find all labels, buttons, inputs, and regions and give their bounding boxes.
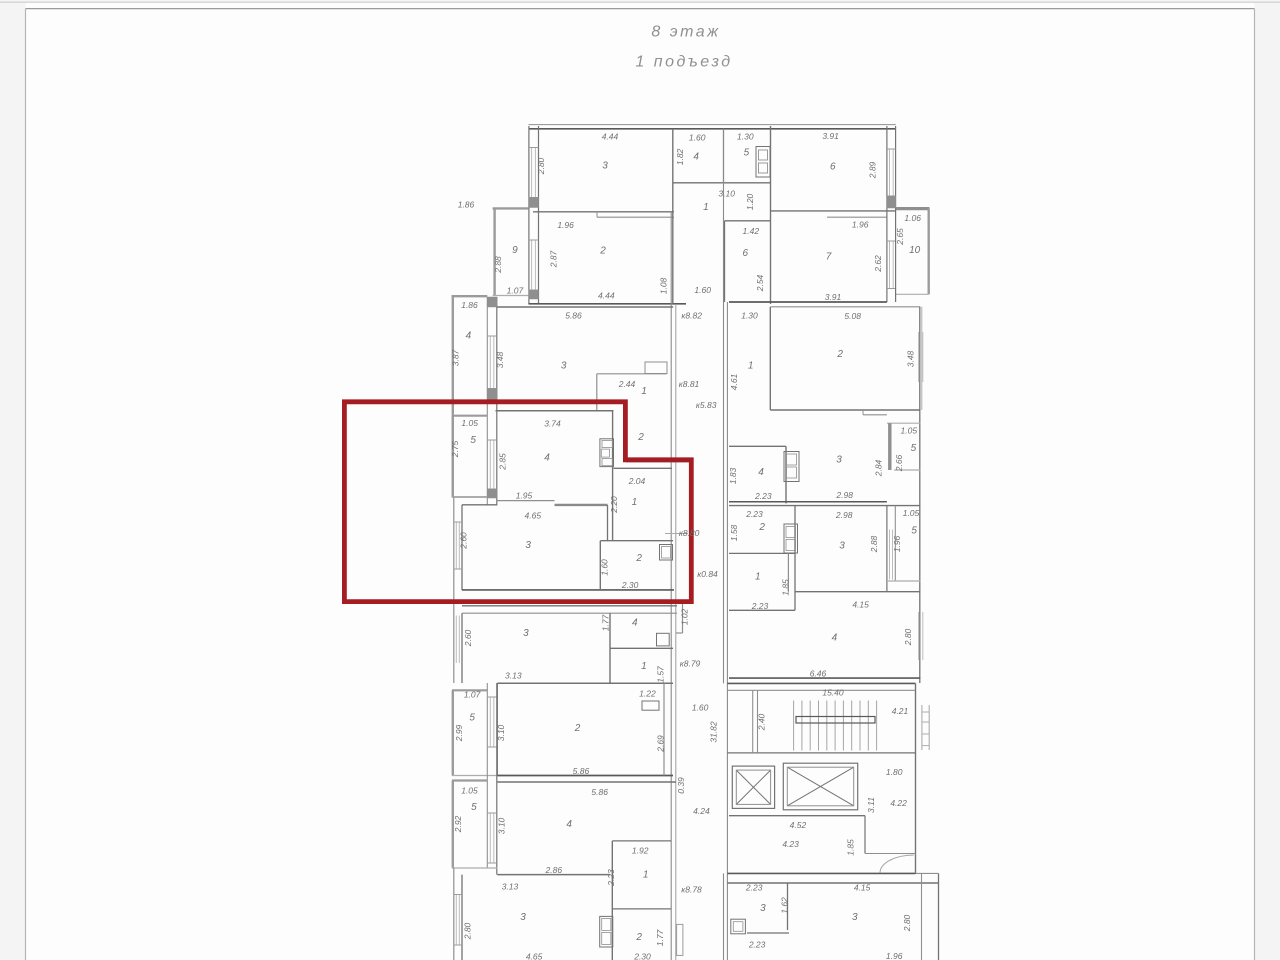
svg-text:1.30: 1.30	[741, 311, 758, 321]
svg-text:4: 4	[693, 152, 699, 163]
svg-text:4: 4	[466, 331, 472, 342]
svg-text:4.65: 4.65	[525, 511, 542, 521]
svg-text:1.07: 1.07	[507, 286, 524, 296]
svg-text:к0.84: к0.84	[697, 569, 718, 579]
svg-text:2.98: 2.98	[835, 490, 853, 500]
svg-text:6.46: 6.46	[810, 669, 827, 679]
svg-text:4.21: 4.21	[892, 706, 909, 716]
svg-text:2.30: 2.30	[621, 580, 639, 590]
svg-text:1.77: 1.77	[655, 929, 665, 946]
svg-text:1.86: 1.86	[461, 300, 478, 310]
svg-text:2.60: 2.60	[458, 532, 468, 550]
svg-text:1.60: 1.60	[692, 703, 709, 713]
svg-text:1.96: 1.96	[557, 220, 574, 230]
svg-text:4: 4	[832, 633, 838, 644]
svg-text:2.23: 2.23	[751, 601, 769, 611]
svg-text:2.80: 2.80	[903, 628, 913, 646]
svg-text:2.23: 2.23	[748, 940, 766, 950]
svg-text:3: 3	[839, 541, 845, 552]
svg-text:31.82: 31.82	[709, 721, 719, 743]
svg-text:2.23: 2.23	[745, 883, 763, 893]
svg-text:1.95: 1.95	[516, 491, 533, 501]
svg-text:2.66: 2.66	[894, 454, 904, 472]
svg-text:3.11: 3.11	[866, 797, 876, 813]
svg-text:4.15: 4.15	[854, 883, 871, 893]
svg-text:2.65: 2.65	[895, 228, 905, 246]
svg-text:1.77: 1.77	[600, 614, 610, 631]
svg-text:10: 10	[909, 245, 921, 256]
svg-text:1.86: 1.86	[458, 200, 475, 210]
svg-text:2.85: 2.85	[498, 453, 508, 471]
svg-text:1: 1	[641, 386, 647, 397]
svg-text:1.08: 1.08	[659, 277, 669, 294]
svg-text:2.84: 2.84	[873, 459, 883, 477]
svg-text:2.99: 2.99	[454, 724, 464, 742]
svg-text:1.42: 1.42	[743, 226, 760, 236]
svg-text:1: 1	[703, 202, 709, 213]
svg-text:2: 2	[758, 522, 765, 533]
svg-text:3: 3	[836, 455, 842, 466]
svg-text:к8.81: к8.81	[679, 379, 700, 389]
svg-text:2.88: 2.88	[493, 256, 503, 274]
svg-text:2.44: 2.44	[618, 379, 636, 389]
svg-text:1.22: 1.22	[639, 689, 656, 699]
svg-text:3: 3	[561, 361, 567, 372]
svg-text:5: 5	[471, 802, 477, 813]
svg-text:2.69: 2.69	[655, 735, 665, 753]
svg-text:1.07: 1.07	[464, 690, 481, 700]
svg-text:3.87: 3.87	[451, 349, 461, 366]
svg-text:2.30: 2.30	[633, 952, 651, 960]
svg-text:7: 7	[826, 252, 832, 263]
svg-text:4.22: 4.22	[890, 798, 907, 808]
svg-text:3.10: 3.10	[496, 724, 506, 741]
svg-text:1 подъезд: 1 подъезд	[635, 54, 732, 71]
svg-text:2: 2	[599, 246, 606, 257]
svg-text:3: 3	[852, 912, 858, 923]
svg-text:1.02: 1.02	[680, 608, 690, 625]
svg-text:1.96: 1.96	[852, 220, 869, 230]
svg-text:4: 4	[632, 618, 638, 629]
svg-text:1.57: 1.57	[655, 666, 665, 683]
svg-text:2.04: 2.04	[628, 476, 646, 486]
svg-text:2.86: 2.86	[545, 865, 563, 875]
svg-text:2.23: 2.23	[754, 491, 772, 501]
svg-text:3.10: 3.10	[497, 817, 507, 834]
svg-text:5.86: 5.86	[565, 311, 582, 321]
svg-text:1.30: 1.30	[737, 132, 754, 142]
svg-text:1.62: 1.62	[780, 897, 790, 914]
svg-text:3: 3	[602, 161, 608, 172]
svg-text:1.05: 1.05	[461, 786, 478, 796]
svg-text:4: 4	[758, 467, 764, 478]
svg-text:3.91: 3.91	[822, 131, 839, 141]
svg-text:3.10: 3.10	[718, 189, 735, 199]
svg-text:2.23: 2.23	[745, 509, 763, 519]
svg-text:1.60: 1.60	[694, 285, 711, 295]
svg-text:3: 3	[525, 540, 531, 551]
svg-text:1: 1	[632, 497, 638, 508]
svg-text:2.54: 2.54	[755, 274, 765, 292]
svg-text:4.44: 4.44	[598, 291, 615, 301]
svg-text:к8.82: к8.82	[681, 311, 702, 321]
svg-text:2.23: 2.23	[606, 869, 616, 887]
svg-text:2.80: 2.80	[463, 922, 473, 940]
svg-text:1.05: 1.05	[461, 418, 478, 428]
svg-text:5: 5	[911, 443, 917, 454]
svg-text:4.15: 4.15	[852, 600, 869, 610]
svg-text:3.13: 3.13	[505, 671, 522, 681]
svg-text:3.74: 3.74	[544, 419, 561, 429]
svg-text:1: 1	[641, 661, 647, 672]
svg-text:1.58: 1.58	[729, 524, 739, 541]
svg-text:2: 2	[637, 432, 644, 443]
svg-text:1.92: 1.92	[632, 846, 649, 856]
svg-text:4.44: 4.44	[602, 132, 619, 142]
svg-text:2.20: 2.20	[609, 496, 619, 514]
svg-text:2.88: 2.88	[869, 535, 879, 553]
svg-text:к5.83: к5.83	[696, 400, 717, 410]
svg-text:5: 5	[911, 526, 917, 537]
svg-text:к8.78: к8.78	[681, 885, 702, 895]
svg-text:2.80: 2.80	[536, 157, 546, 175]
svg-text:2.89: 2.89	[868, 161, 878, 179]
svg-text:4: 4	[566, 819, 572, 830]
svg-text:15.40: 15.40	[822, 688, 844, 698]
svg-text:1.96: 1.96	[892, 535, 902, 552]
svg-text:2: 2	[836, 349, 843, 360]
svg-text:1.05: 1.05	[903, 508, 920, 518]
svg-text:3.48: 3.48	[495, 351, 505, 368]
svg-text:4.52: 4.52	[790, 820, 807, 830]
svg-text:2: 2	[574, 723, 581, 734]
svg-text:1: 1	[755, 572, 761, 583]
svg-text:5: 5	[469, 713, 475, 724]
svg-text:9: 9	[512, 245, 518, 256]
svg-text:2.75: 2.75	[450, 440, 460, 458]
svg-text:1.83: 1.83	[728, 467, 738, 484]
svg-text:4.61: 4.61	[729, 373, 739, 390]
svg-text:5: 5	[744, 148, 750, 159]
svg-text:2.92: 2.92	[453, 815, 463, 833]
svg-text:5.08: 5.08	[844, 311, 861, 321]
svg-text:1.20: 1.20	[745, 193, 755, 210]
svg-text:1: 1	[643, 870, 649, 881]
svg-text:3.48: 3.48	[905, 350, 915, 367]
svg-text:3.91: 3.91	[825, 292, 842, 302]
svg-text:5: 5	[470, 435, 476, 446]
svg-text:3: 3	[760, 903, 766, 914]
svg-text:3: 3	[520, 912, 526, 923]
svg-text:1.80: 1.80	[886, 767, 903, 777]
svg-text:4.24: 4.24	[693, 806, 710, 816]
svg-text:1.06: 1.06	[904, 213, 921, 223]
svg-text:1: 1	[748, 361, 754, 372]
svg-text:1.05: 1.05	[901, 426, 918, 436]
svg-text:2.62: 2.62	[873, 255, 883, 273]
svg-text:3.13: 3.13	[502, 882, 519, 892]
svg-text:1.96: 1.96	[886, 951, 903, 960]
svg-text:2.80: 2.80	[902, 914, 912, 932]
svg-text:1.82: 1.82	[675, 148, 685, 165]
svg-text:5.86: 5.86	[573, 766, 590, 776]
svg-text:3: 3	[523, 628, 529, 639]
svg-text:4.65: 4.65	[526, 952, 543, 960]
svg-text:6: 6	[830, 162, 836, 173]
svg-text:к8.79: к8.79	[680, 659, 701, 669]
svg-text:2.98: 2.98	[835, 510, 853, 520]
svg-text:2.40: 2.40	[756, 713, 766, 731]
svg-text:6: 6	[743, 248, 749, 259]
svg-text:8 этаж: 8 этаж	[651, 24, 720, 41]
svg-text:2.60: 2.60	[463, 629, 473, 647]
svg-text:1.85: 1.85	[845, 839, 855, 856]
svg-text:2.87: 2.87	[548, 250, 558, 268]
svg-text:4: 4	[544, 453, 550, 464]
svg-text:1.85: 1.85	[780, 579, 790, 596]
svg-text:2: 2	[635, 932, 642, 943]
svg-text:1.60: 1.60	[689, 133, 706, 143]
svg-text:5.86: 5.86	[591, 787, 608, 797]
svg-text:4.23: 4.23	[782, 839, 799, 849]
svg-text:1.60: 1.60	[599, 559, 609, 576]
svg-text:2: 2	[635, 553, 642, 564]
svg-text:к8.80: к8.80	[679, 528, 700, 538]
svg-text:0.39: 0.39	[676, 777, 686, 794]
